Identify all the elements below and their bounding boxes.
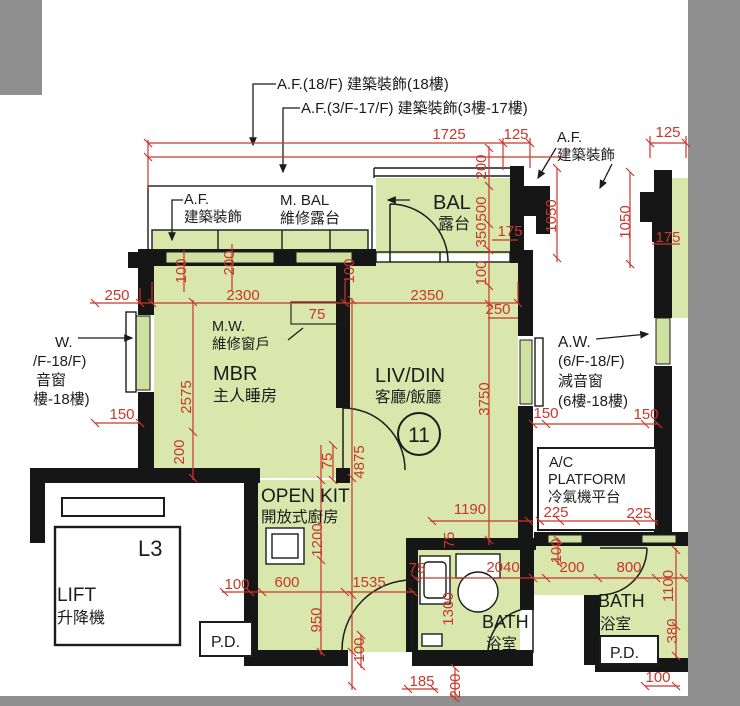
dim-text: 600 (274, 574, 299, 591)
unit-number: 11 (408, 424, 430, 447)
dim-text: 1190 (454, 501, 486, 518)
label-ac-line2: PLATFORM (548, 472, 626, 488)
dim-text: 2040 (486, 559, 519, 576)
dim-text: 1050 (543, 199, 560, 232)
room-adjacent-unit (672, 178, 688, 318)
label-lobby-l3: L3 (138, 536, 162, 561)
annotation-aw-left-line3: 音窗 (36, 371, 66, 389)
annotation-af-topright-line2: 建築裝飾 (557, 146, 615, 164)
room-label-bath1-zh: 浴室 (486, 635, 517, 653)
dim-text: 150 (633, 406, 658, 423)
window-corridor-2 (642, 535, 676, 543)
annotation-aw-right-line3: 減音窗 (558, 372, 603, 390)
dim-text: 200 (473, 154, 490, 179)
room-label-balcony-en: BAL (433, 192, 471, 214)
frame-gray-bottom (0, 696, 740, 706)
dim-text: 150 (109, 406, 134, 423)
room-label-openkit-zh: 開放式廚房 (261, 507, 339, 526)
window-aw-right-glass (520, 340, 532, 404)
dim-text: 380 (664, 618, 681, 643)
dim-text: 1300 (440, 592, 457, 625)
annotation-aw-left-line4: 樓-18樓) (33, 391, 90, 408)
room-label-bath2-zh: 浴室 (600, 615, 631, 633)
dim-text: 950 (308, 607, 325, 632)
annotation-mw-line2: 維修窗戶 (212, 335, 270, 353)
dim-text: 225 (626, 505, 651, 522)
dim-text: 1200 (309, 523, 326, 556)
dim-text: 75 (309, 306, 326, 323)
dim-text: 2300 (226, 287, 259, 304)
annotation-mbal-line1: M. BAL (280, 192, 329, 209)
room-label-balcony-zh: 露台 (438, 215, 470, 233)
annotation-af-topleft-line2: 建築裝飾 (184, 208, 242, 226)
dim-text: 350 (473, 222, 490, 247)
label-ac-line3: 冷氣機平台 (548, 489, 621, 506)
floor-plan-drawing: 1725 125 125 250 2300 2350 250 75 150 15… (0, 0, 740, 706)
dim-text: 200 (171, 439, 188, 464)
dim-text: 2350 (410, 287, 443, 304)
dim-text: 75 (319, 453, 336, 470)
annotation-af-topleft-line1: A.F. (184, 192, 209, 208)
room-label-openkit-en: OPEN KIT (261, 486, 350, 507)
dim-text: 250 (485, 301, 510, 318)
annotation-aw-left-line1: W. (55, 334, 73, 351)
label-ac-line1: A/C (549, 455, 573, 471)
bath-fixture-small (422, 634, 442, 646)
annotation-mw-line1: M.W. (212, 319, 245, 335)
annotation-af-topright-line1: A.F. (557, 130, 582, 146)
room-label-bath2-en: BATH (598, 591, 645, 611)
label-pd-right: P.D. (610, 645, 639, 662)
dim-text: 75 (409, 560, 426, 577)
room-mbal-window-band (152, 230, 368, 250)
floor-plan-page: 1725 125 125 250 2300 2350 250 75 150 15… (0, 0, 740, 706)
dim-text: 200 (447, 673, 464, 698)
lift-lobby-slot (62, 498, 164, 516)
room-label-lift-zh: 升降機 (57, 609, 105, 627)
dim-text: 250 (104, 287, 129, 304)
annotation-mbal-line2: 維修露台 (280, 210, 340, 227)
dim-text: 100 (351, 637, 368, 662)
annotation-af-3f-17f: A.F.(3/F-17/F) 建築裝飾(3樓-17樓) (301, 99, 528, 117)
dim-text: 3750 (476, 382, 493, 415)
dim-text: 1535 (352, 574, 385, 591)
annotation-aw-right-line1: A.W. (558, 334, 591, 351)
room-label-lift-en: LIFT (57, 585, 96, 606)
dim-text: 4875 (351, 445, 368, 478)
dim-text: 75 (441, 532, 458, 549)
dim-text: 1725 (432, 126, 465, 143)
frame-gray-right (688, 0, 740, 706)
dim-text: 100 (224, 576, 249, 593)
label-pd-left: P.D. (211, 634, 240, 651)
dim-text: 185 (409, 673, 434, 690)
dim-text: 500 (473, 196, 490, 221)
dim-text: 200 (221, 250, 238, 275)
dim-text: 100 (645, 669, 670, 686)
dim-text: 1050 (617, 205, 634, 238)
room-label-livdin-zh: 客廳/飯廳 (375, 387, 441, 406)
annotation-aw-left-line2: /F-18/F) (33, 353, 86, 370)
annotation-aw-right-line2: (6/F-18/F) (558, 353, 625, 370)
dim-text: 175 (655, 229, 680, 246)
dim-text: 100 (341, 258, 358, 283)
dim-text: 100 (548, 538, 565, 563)
window-adjacent-glass (656, 318, 670, 364)
room-label-bath1-en: BATH (482, 612, 529, 632)
dim-text: 125 (503, 126, 528, 143)
room-label-mbr-en: MBR (213, 363, 257, 385)
dim-text: 175 (497, 223, 522, 240)
dim-text: 2575 (178, 380, 195, 413)
window-aw-left-glass (136, 316, 150, 390)
annotation-aw-right-line4: (6樓-18樓) (558, 393, 628, 410)
dim-text: 100 (173, 258, 190, 283)
dim-text: 800 (616, 559, 641, 576)
room-label-mbr-zh: 主人睡房 (213, 387, 277, 405)
frame-gray-topleft (0, 0, 42, 95)
dim-text: 125 (655, 124, 680, 141)
room-label-livdin-en: LIV/DIN (375, 365, 445, 387)
annotation-af-18f: A.F.(18/F) 建築裝飾(18樓) (277, 75, 449, 93)
dim-text: 225 (543, 504, 568, 521)
dim-text: 100 (473, 260, 490, 285)
dim-text: 150 (533, 405, 558, 422)
dim-text: 1100 (660, 570, 677, 602)
